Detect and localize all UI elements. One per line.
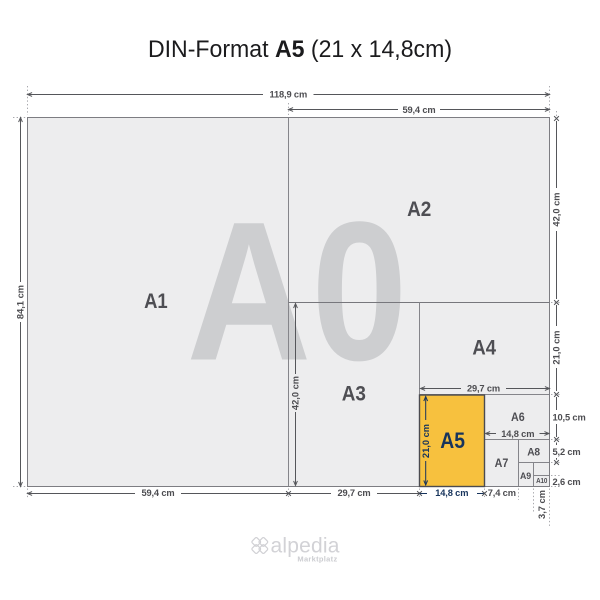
svg-text:2,6 cm: 2,6 cm [553,477,581,487]
svg-text:29,7 cm: 29,7 cm [467,383,500,393]
svg-text:A2: A2 [407,198,431,221]
svg-text:DIN-Format A5 (21 x 14,8cm): DIN-Format A5 (21 x 14,8cm) [148,35,452,63]
svg-text:Marktplatz: Marktplatz [297,555,337,564]
svg-text:59,4 cm: 59,4 cm [141,488,174,498]
svg-text:59,4 cm: 59,4 cm [402,105,435,115]
svg-text:A5: A5 [440,429,465,453]
svg-text:21,0 cm: 21,0 cm [421,424,431,458]
svg-text:21,0 cm: 21,0 cm [552,330,562,364]
svg-text:A6: A6 [511,412,525,424]
svg-text:42,0 cm: 42,0 cm [552,192,562,226]
svg-text:A0: A0 [187,182,408,403]
svg-text:A3: A3 [342,382,366,405]
svg-text:A1: A1 [144,290,168,313]
svg-text:A8: A8 [527,446,540,458]
svg-text:7,4 cm: 7,4 cm [488,488,516,498]
svg-text:14,8 cm: 14,8 cm [501,429,534,439]
svg-text:29,7 cm: 29,7 cm [337,488,370,498]
svg-text:3,7 cm: 3,7 cm [537,490,547,519]
svg-text:42,0 cm: 42,0 cm [291,376,301,410]
svg-text:A9: A9 [520,471,531,481]
svg-text:84,1 cm: 84,1 cm [16,285,26,319]
svg-text:A10: A10 [536,478,548,485]
svg-text:A4: A4 [472,336,496,359]
svg-text:A7: A7 [495,457,509,469]
svg-text:118,9 cm: 118,9 cm [270,89,308,99]
svg-text:10,5 cm: 10,5 cm [553,413,586,423]
svg-text:5,2 cm: 5,2 cm [553,447,581,457]
svg-text:14,8 cm: 14,8 cm [435,488,468,498]
